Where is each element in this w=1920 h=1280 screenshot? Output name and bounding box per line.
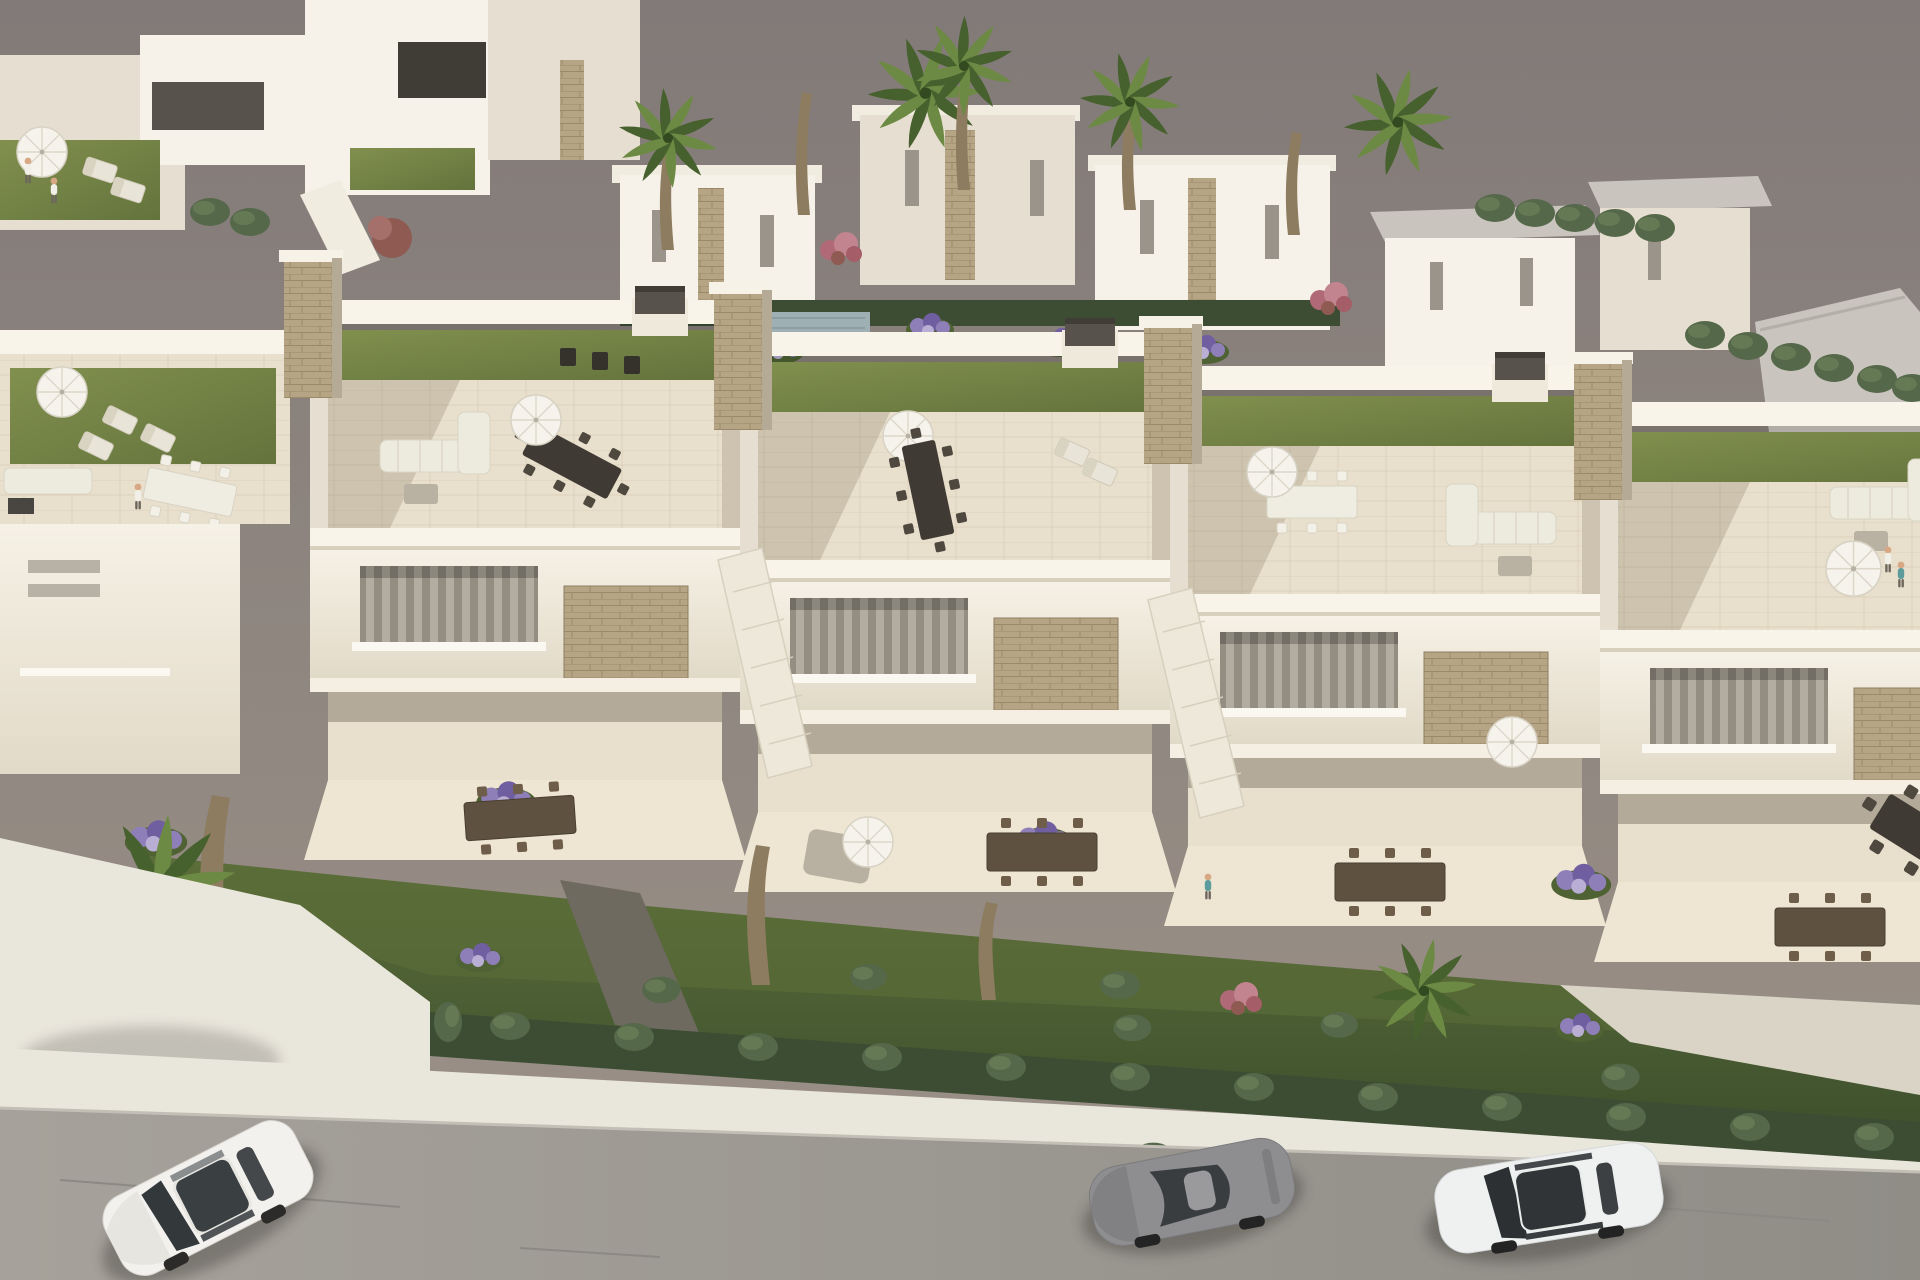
townhouse-unit-3: [1139, 316, 1606, 926]
aerial-render: [0, 0, 1920, 1280]
render-viewport: [0, 0, 1920, 1280]
grill: [8, 498, 34, 514]
parasol: [17, 127, 67, 177]
dark-pergola: [398, 42, 486, 98]
glass-roof: [1514, 1163, 1589, 1233]
townhouse-unit-4: [1569, 352, 1920, 962]
parasol: [37, 367, 87, 417]
outdoor-sofa: [4, 468, 92, 494]
dark-pergola: [152, 82, 264, 130]
townhouse-unit-1: [279, 250, 746, 860]
townhouse-unit-2: [709, 282, 1176, 892]
